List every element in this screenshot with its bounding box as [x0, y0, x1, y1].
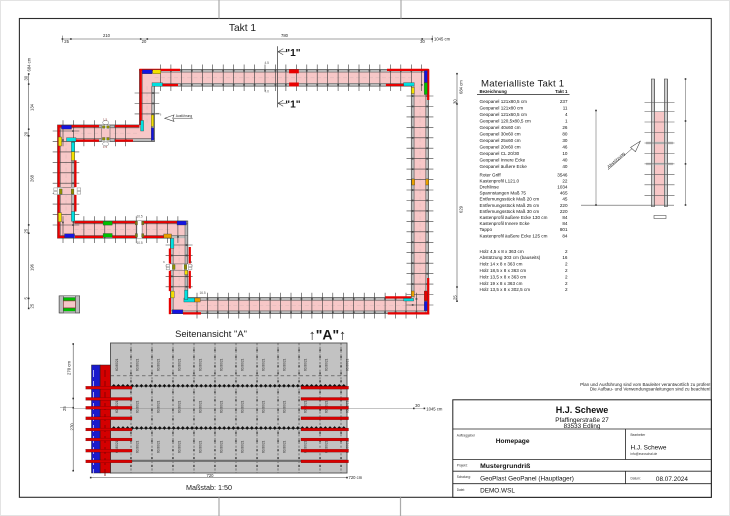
svg-text:Geopanel CL 20/30: Geopanel CL 20/30 — [480, 151, 520, 156]
svg-text:Entfernungsstück Maß 30 cm: Entfernungsstück Maß 30 cm — [480, 209, 540, 214]
svg-text:1.5: 1.5 — [103, 145, 108, 149]
svg-text:16.5: 16.5 — [200, 291, 206, 295]
svg-text:720: 720 — [207, 473, 215, 478]
svg-text:60.80/21: 60.80/21 — [220, 400, 224, 413]
svg-text:134: 134 — [30, 103, 35, 111]
svg-text:60.80/21: 60.80/21 — [157, 440, 161, 453]
svg-text:Geopanel Innere Ecke: Geopanel Innere Ecke — [480, 158, 526, 163]
svg-text:84: 84 — [562, 221, 568, 226]
svg-text:60.80/21: 60.80/21 — [199, 358, 203, 371]
svg-text:Holz 19 x 8 x 363 cm: Holz 19 x 8 x 363 cm — [480, 281, 523, 286]
svg-text:60.80/21: 60.80/21 — [178, 358, 182, 371]
svg-text:Holz 13,5 x 8 x 302,5 cm: Holz 13,5 x 8 x 302,5 cm — [480, 287, 531, 292]
svg-text:84: 84 — [562, 233, 568, 238]
svg-text:Bezeichnung: Bezeichnung — [480, 89, 508, 94]
svg-text:40: 40 — [562, 164, 568, 169]
svg-text:Seitenansicht "A": Seitenansicht "A" — [175, 328, 247, 339]
svg-text:60.80/21: 60.80/21 — [178, 400, 182, 413]
svg-text:60.80/21: 60.80/21 — [136, 440, 140, 453]
svg-text:720 cm: 720 cm — [349, 475, 363, 480]
svg-text:Geopanel 121x60,5 cm: Geopanel 121x60,5 cm — [480, 112, 528, 117]
svg-text:25: 25 — [62, 406, 67, 411]
svg-text:780: 780 — [281, 33, 289, 38]
svg-text:Geopanel 121x80,5 cm: Geopanel 121x80,5 cm — [480, 99, 528, 104]
svg-text:84: 84 — [562, 215, 568, 220]
svg-text:46: 46 — [562, 145, 568, 150]
svg-text:60.80/21: 60.80/21 — [199, 400, 203, 413]
svg-text:2: 2 — [565, 281, 568, 286]
svg-text:237: 237 — [560, 99, 568, 104]
svg-text:Datum:: Datum: — [631, 477, 641, 481]
svg-text:25: 25 — [30, 303, 35, 308]
svg-text:Spannstangen Maß 75: Spannstangen Maß 75 — [480, 191, 527, 196]
svg-text:25: 25 — [452, 295, 457, 300]
svg-text:2: 2 — [565, 262, 568, 267]
svg-text:Kastenprofil äußere Ecke 130 c: Kastenprofil äußere Ecke 130 cm — [480, 215, 548, 220]
svg-text:60.80/21: 60.80/21 — [262, 400, 266, 413]
svg-text:3546: 3546 — [557, 172, 568, 177]
svg-text:684 cm: 684 cm — [458, 80, 463, 94]
svg-text:4.5: 4.5 — [265, 61, 270, 65]
svg-text:Geopanel 40x60 cm: Geopanel 40x60 cm — [480, 125, 521, 130]
svg-text:60.80/21: 60.80/21 — [283, 400, 287, 413]
svg-text:4: 4 — [565, 112, 568, 117]
svg-text:Projekt:: Projekt: — [457, 463, 468, 467]
svg-text:Auftraggeber: Auftraggeber — [457, 433, 476, 437]
svg-text:Maßstab: 1:50: Maßstab: 1:50 — [186, 483, 232, 492]
svg-text:Kastenprofil Innere Ecke: Kastenprofil Innere Ecke — [480, 221, 530, 226]
svg-text:Drehlinse: Drehlinse — [480, 185, 500, 190]
svg-text:60.80/21: 60.80/21 — [304, 358, 308, 371]
svg-text:220: 220 — [560, 209, 568, 214]
svg-text:60.80/21: 60.80/21 — [136, 400, 140, 413]
svg-text:Geopanel äußere Ecke: Geopanel äußere Ecke — [480, 164, 528, 169]
svg-text:60.80/21: 60.80/21 — [199, 440, 203, 453]
svg-text:60.80/21: 60.80/21 — [262, 440, 266, 453]
svg-text:1034: 1034 — [557, 185, 568, 190]
svg-text:60.80/21: 60.80/21 — [325, 358, 329, 371]
svg-text:30: 30 — [420, 39, 425, 44]
svg-text:2: 2 — [565, 287, 568, 292]
svg-text:H.J. Schewe: H.J. Schewe — [556, 405, 609, 415]
svg-text:270 cm: 270 cm — [67, 360, 72, 375]
svg-text:Mustergrundriß: Mustergrundriß — [480, 463, 530, 470]
svg-text:Geopanel 25x60 cm: Geopanel 25x60 cm — [480, 138, 521, 143]
svg-text:30: 30 — [415, 403, 420, 408]
svg-text:↑"A"↑: ↑"A"↑ — [309, 327, 346, 343]
svg-text:25: 25 — [64, 39, 69, 44]
svg-text:30: 30 — [23, 75, 28, 80]
svg-text:Tappo: Tappo — [480, 227, 493, 232]
svg-text:60.80/21: 60.80/21 — [241, 440, 245, 453]
svg-text:45: 45 — [562, 197, 568, 202]
svg-text:"1": "1" — [285, 48, 300, 59]
svg-text:Kastenprofil äußere Ecke 125 c: Kastenprofil äußere Ecke 125 cm — [480, 233, 548, 238]
svg-text:11: 11 — [563, 106, 568, 111]
svg-text:Geopanel 121x80 cm: Geopanel 121x80 cm — [480, 106, 524, 111]
svg-text:60.80/21: 60.80/21 — [346, 358, 350, 371]
svg-text:10.5: 10.5 — [137, 215, 143, 219]
svg-text:83533 Edling: 83533 Edling — [564, 423, 601, 430]
svg-text:60.80/21: 60.80/21 — [157, 400, 161, 413]
svg-text:Schalung:: Schalung: — [457, 475, 471, 479]
svg-text:1045 cm: 1045 cm — [426, 406, 443, 411]
svg-text:60.80/21: 60.80/21 — [157, 358, 161, 371]
svg-text:2: 2 — [565, 249, 568, 254]
svg-text:Materialliste Takt 1: Materialliste Takt 1 — [481, 78, 564, 89]
svg-text:629: 629 — [458, 205, 463, 213]
svg-text:"1": "1" — [285, 99, 300, 110]
svg-text:4.0: 4.0 — [265, 90, 270, 94]
svg-text:20: 20 — [142, 39, 147, 44]
svg-text:196: 196 — [30, 263, 35, 271]
svg-text:60.80/21: 60.80/21 — [262, 358, 266, 371]
svg-text:Homepage: Homepage — [496, 438, 530, 445]
svg-text:Roter Griff: Roter Griff — [480, 172, 502, 177]
svg-text:60.80/21: 60.80/21 — [220, 358, 224, 371]
svg-text:Holz 18,5 x 8 x 363 cm: Holz 18,5 x 8 x 363 cm — [480, 268, 527, 273]
svg-text:Datei:: Datei: — [457, 488, 465, 492]
svg-text:465: 465 — [560, 191, 568, 196]
svg-text:Holz 13,5 x 8 x 363 cm: Holz 13,5 x 8 x 363 cm — [480, 274, 527, 279]
svg-text:Ausführung: Ausführung — [176, 114, 193, 118]
svg-text:60.80/21: 60.80/21 — [136, 358, 140, 371]
svg-text:Die Aufbau- und Verwendungsanl: Die Aufbau- und Verwendungsanleitungen s… — [590, 386, 711, 391]
svg-text:1.5: 1.5 — [103, 117, 108, 121]
svg-text:80: 80 — [562, 132, 568, 137]
svg-text:684 cm: 684 cm — [26, 57, 31, 71]
svg-text:10.5: 10.5 — [137, 241, 143, 245]
svg-text:Bearbeiter: Bearbeiter — [631, 433, 647, 437]
svg-text:1: 1 — [565, 119, 568, 124]
svg-text:60.80/21: 60.80/21 — [115, 358, 119, 371]
svg-text:220: 220 — [560, 203, 568, 208]
svg-text:2: 2 — [565, 274, 568, 279]
svg-text:Geopanel 120,5x80,5 cm: Geopanel 120,5x80,5 cm — [480, 119, 532, 124]
svg-text:Holz 4,5 x 8 x 363 cm: Holz 4,5 x 8 x 363 cm — [480, 249, 524, 254]
svg-text:60.80/21: 60.80/21 — [241, 400, 245, 413]
svg-text:1045 cm: 1045 cm — [434, 37, 451, 42]
svg-text:GeoPlast GeoPanel (Hauptlager): GeoPlast GeoPanel (Hauptlager) — [480, 476, 574, 483]
svg-text:H.J. Schewe: H.J. Schewe — [631, 444, 667, 451]
svg-text:Holz 14 x 8 x 363 cm: Holz 14 x 8 x 363 cm — [480, 262, 523, 267]
svg-text:801: 801 — [560, 227, 568, 232]
svg-text:60.80/21: 60.80/21 — [220, 440, 224, 453]
svg-text:26: 26 — [562, 125, 568, 130]
svg-text:60.80/21: 60.80/21 — [241, 358, 245, 371]
svg-text:info@euroschal.de: info@euroschal.de — [631, 452, 658, 456]
svg-text:DEMO.WSL: DEMO.WSL — [480, 488, 515, 495]
svg-text:Geopanel 30x60 cm: Geopanel 30x60 cm — [480, 132, 521, 137]
svg-text:22: 22 — [562, 178, 568, 183]
svg-text:Entfernungsstück Maß 25 cm: Entfernungsstück Maß 25 cm — [480, 203, 540, 208]
svg-text:08.07.2024: 08.07.2024 — [656, 476, 688, 483]
svg-text:Kastenprofil L121.0: Kastenprofil L121.0 — [480, 178, 520, 183]
svg-text:40: 40 — [562, 158, 568, 163]
svg-text:30: 30 — [452, 99, 457, 104]
svg-text:25: 25 — [23, 228, 28, 233]
svg-text:Takt 1: Takt 1 — [555, 89, 568, 94]
svg-text:30: 30 — [562, 138, 568, 143]
svg-text:Takt 1: Takt 1 — [229, 23, 257, 34]
svg-text:60.80/21: 60.80/21 — [283, 358, 287, 371]
svg-text:2: 2 — [565, 268, 568, 273]
svg-text:268: 268 — [30, 174, 35, 182]
svg-text:60.80/21: 60.80/21 — [283, 440, 287, 453]
svg-text:270: 270 — [70, 423, 75, 431]
svg-text:Abstützung 303 cm (bauseits): Abstützung 303 cm (bauseits) — [480, 255, 541, 260]
svg-text:Entfernungsstück Maß 20 cm: Entfernungsstück Maß 20 cm — [480, 197, 540, 202]
svg-text:210: 210 — [103, 33, 111, 38]
svg-text:10: 10 — [562, 151, 568, 156]
svg-text:20: 20 — [23, 131, 28, 136]
svg-text:60.80/21: 60.80/21 — [178, 440, 182, 453]
svg-text:Geopanel 20x60 cm: Geopanel 20x60 cm — [480, 145, 521, 150]
svg-text:16: 16 — [562, 255, 568, 260]
